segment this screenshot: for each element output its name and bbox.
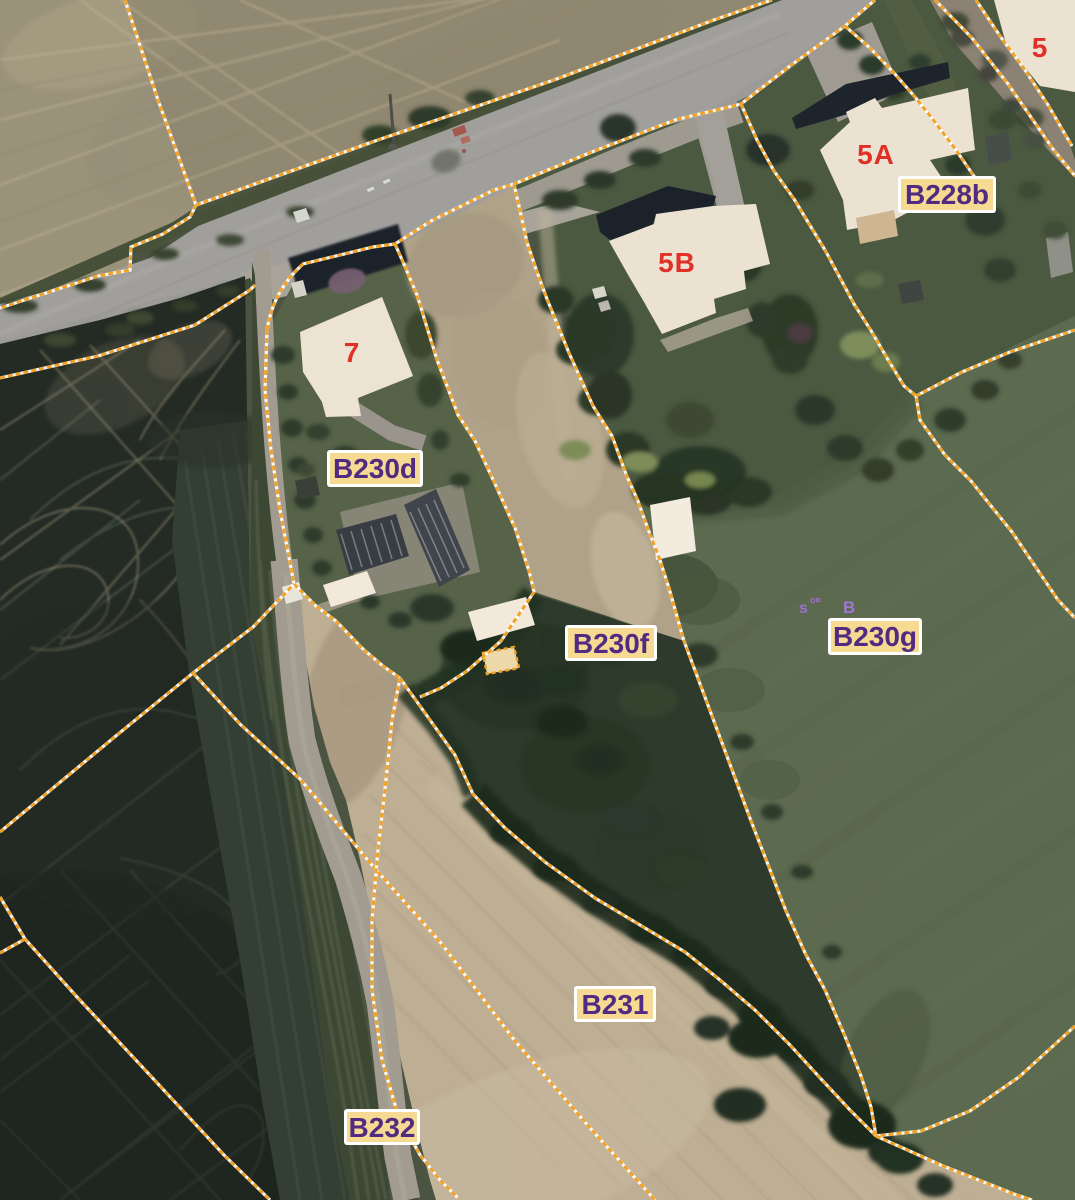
- svg-text:B: B: [843, 598, 855, 617]
- svg-text:5B: 5B: [658, 247, 696, 278]
- svg-text:B230g: B230g: [833, 621, 917, 652]
- svg-text:5A: 5A: [857, 139, 895, 170]
- svg-text:s: s: [799, 600, 808, 617]
- svg-text:B231: B231: [582, 989, 649, 1020]
- svg-text:B230f: B230f: [573, 628, 650, 659]
- svg-text:5: 5: [1032, 32, 1049, 63]
- svg-text:o¤: o¤: [810, 595, 821, 605]
- svg-text:B232: B232: [349, 1112, 416, 1143]
- svg-text:B228b: B228b: [905, 179, 989, 210]
- svg-text:7: 7: [344, 337, 361, 368]
- svg-text:B230d: B230d: [333, 453, 417, 484]
